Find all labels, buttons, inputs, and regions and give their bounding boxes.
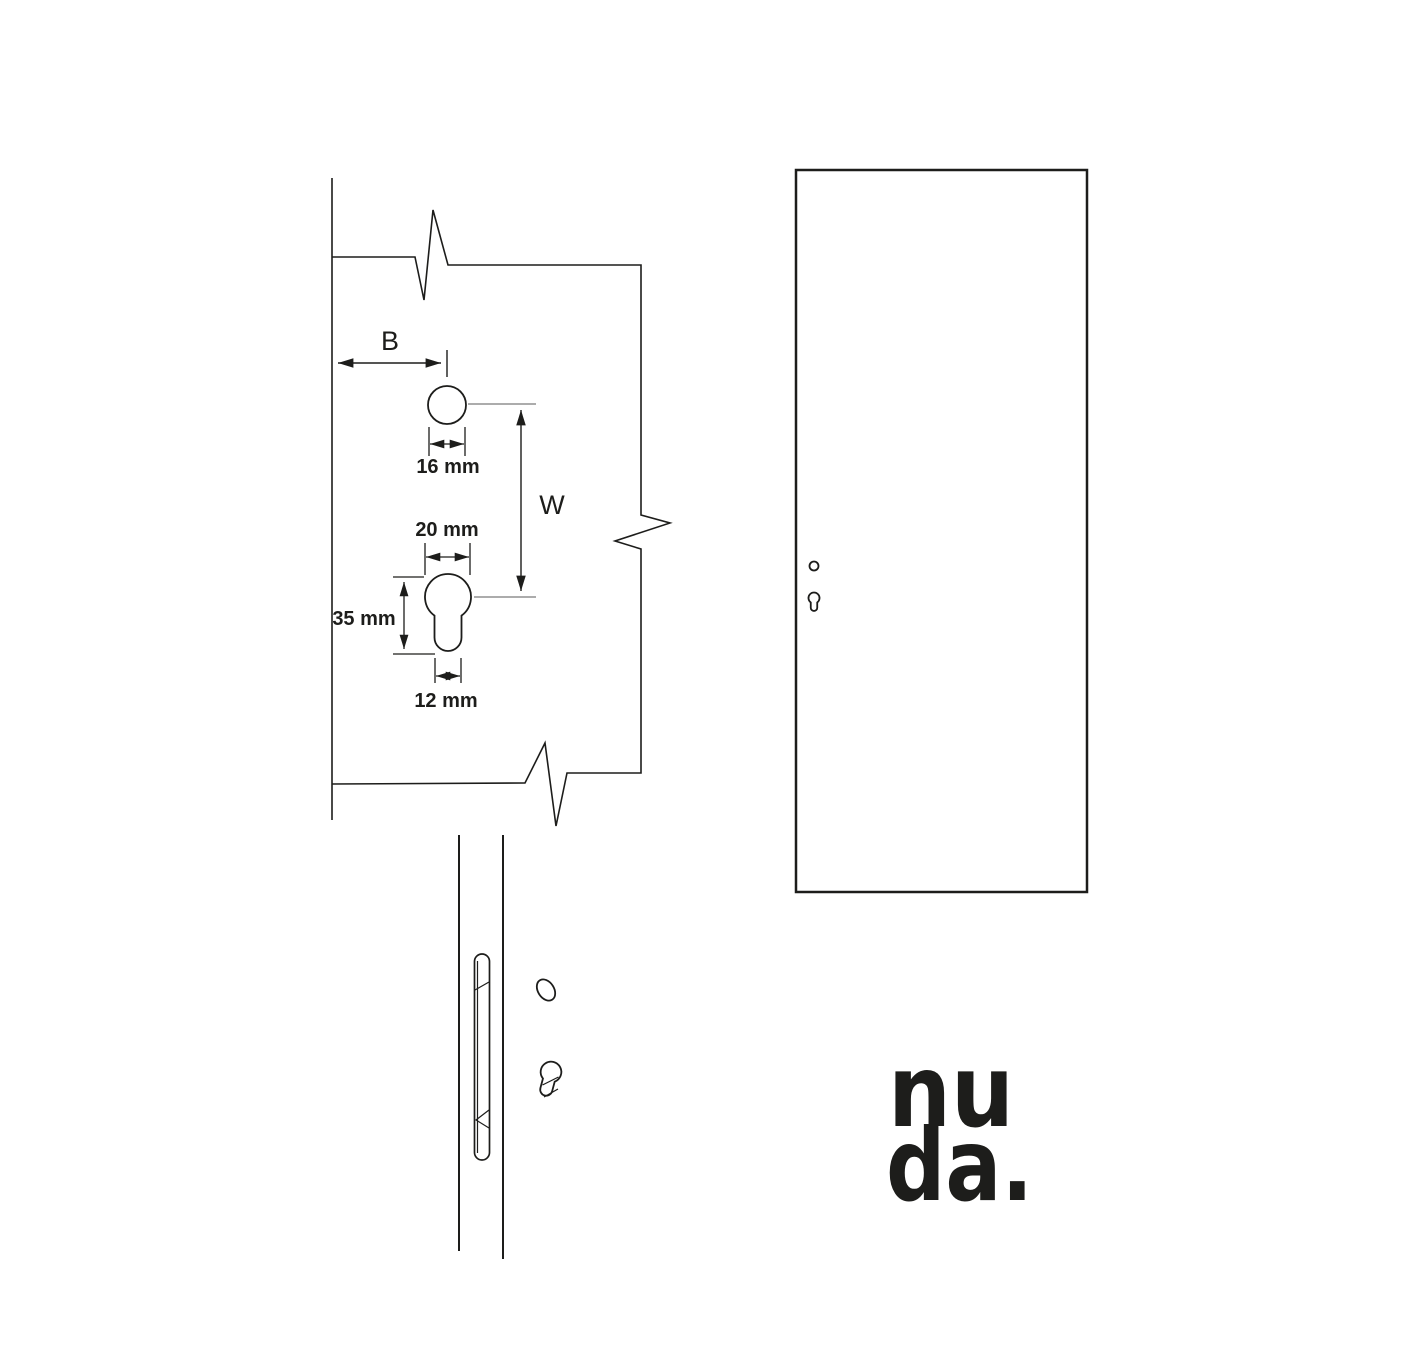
dim-35-label: 35 mm bbox=[332, 608, 395, 630]
dimension-20mm: 20 mm bbox=[415, 519, 478, 575]
dimension-16mm: 16 mm bbox=[416, 427, 479, 478]
nuda-logo: nu da. bbox=[886, 1033, 1033, 1224]
dimension-w: W bbox=[468, 404, 565, 597]
door-outline bbox=[796, 170, 1087, 892]
door-face-detail-view bbox=[332, 178, 670, 826]
technical-drawing-page: B 16 mm W 20 mm bbox=[0, 0, 1417, 1354]
dimension-35mm: 35 mm bbox=[332, 577, 435, 654]
handle-hole-16mm bbox=[428, 386, 466, 424]
door-panel-break-outline bbox=[332, 210, 670, 826]
dim-12-label: 12 mm bbox=[414, 690, 477, 712]
euro-cylinder-cutout bbox=[425, 574, 471, 651]
dim-w-label: W bbox=[539, 490, 565, 520]
dimension-12mm: 12 mm bbox=[414, 658, 477, 712]
door-front-view bbox=[796, 170, 1087, 892]
logo-line-2: da. bbox=[886, 1107, 1033, 1224]
handle-hole-oblique bbox=[533, 976, 559, 1004]
dim-b-label: B bbox=[381, 326, 399, 356]
door-edge-view bbox=[459, 835, 564, 1259]
dim-20-label: 20 mm bbox=[415, 519, 478, 541]
dimension-b: B bbox=[338, 326, 447, 377]
dim-16-label: 16 mm bbox=[416, 456, 479, 478]
lock-dimensions-diagram: B 16 mm W 20 mm bbox=[0, 0, 1417, 1354]
cylinder-hole-oblique bbox=[535, 1059, 564, 1098]
mortise-faceplate bbox=[475, 954, 490, 1160]
